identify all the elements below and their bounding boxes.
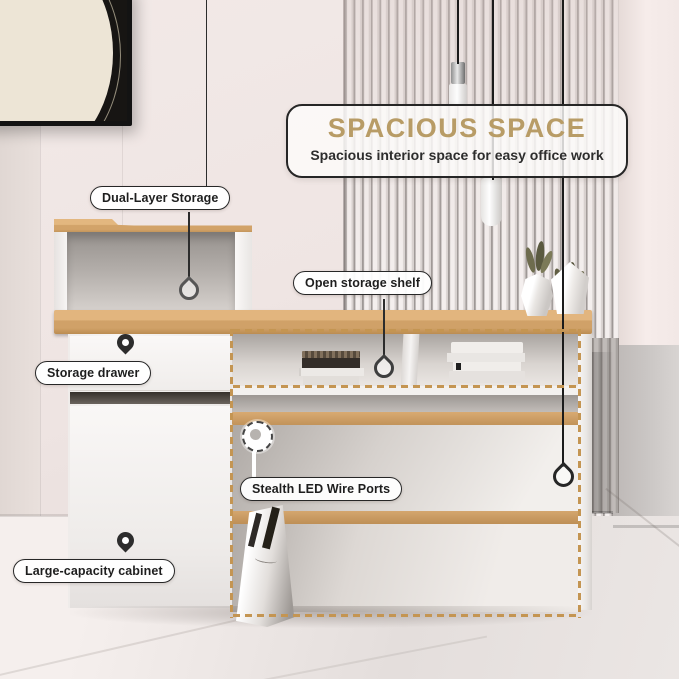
- hutch-left-stile: [54, 232, 67, 318]
- book: [299, 368, 364, 376]
- dashed-outline-bottom: [233, 614, 580, 617]
- leader-line-dual-layer: [188, 212, 190, 279]
- book-spine-label: [456, 363, 461, 370]
- book: [453, 362, 521, 371]
- dashed-outline-right: [578, 329, 581, 618]
- book: [449, 371, 525, 383]
- artwork-frame: [0, 0, 132, 126]
- book: [447, 353, 525, 362]
- callout-large-capacity-cabinet: Large-capacity cabinet: [13, 559, 175, 583]
- leader-line-open-shelf: [383, 299, 385, 358]
- artwork-abstract-blob: [0, 0, 113, 121]
- wall-right-strip: [619, 0, 679, 352]
- drawer-handle-slot: [70, 392, 230, 404]
- hanging-wire-cable: [562, 0, 564, 467]
- callout-dual-layer-storage: Dual-Layer Storage: [90, 186, 230, 210]
- hutch-right-stile: [235, 232, 252, 318]
- wood-rail-upper: [232, 412, 578, 425]
- dashed-outline-shelf: [233, 385, 580, 388]
- book-box: [302, 358, 360, 368]
- desk-floor-shadow: [70, 606, 592, 628]
- geometric-vase: [521, 274, 553, 316]
- wire-port-icon: [242, 421, 273, 452]
- pendant-lamp-large-shade: [481, 178, 502, 226]
- wall-floor-junction: [613, 525, 679, 528]
- book: [303, 376, 359, 385]
- product-infographic-scene: Dual-Layer Storage Open storage shelf St…: [0, 0, 679, 679]
- dashed-outline-top: [233, 329, 580, 332]
- pendant-lamp-small: [451, 62, 465, 84]
- pendant-cable: [457, 0, 459, 64]
- shelf-divider: [401, 334, 420, 388]
- callout-open-storage-shelf: Open storage shelf: [293, 271, 432, 295]
- desk-wall-shadow: [592, 352, 614, 512]
- banner-subtitle: Spacious interior space for easy office …: [288, 147, 626, 163]
- hutch-open-compartment: [67, 232, 235, 318]
- title-banner: SPACIOUS SPACE Spacious interior space f…: [286, 104, 628, 178]
- book-box-top: [302, 351, 360, 358]
- leader-line-dual-layer-top: [206, 0, 208, 187]
- banner-title: SPACIOUS SPACE: [288, 113, 626, 144]
- dashed-outline-left: [230, 329, 233, 618]
- pendant-lamp-small-shade: [449, 84, 467, 106]
- callout-stealth-led-wire-ports: Stealth LED Wire Ports: [240, 477, 402, 501]
- callout-storage-drawer: Storage drawer: [35, 361, 151, 385]
- artwork-canvas: [0, 0, 127, 121]
- wall-seam: [40, 125, 41, 518]
